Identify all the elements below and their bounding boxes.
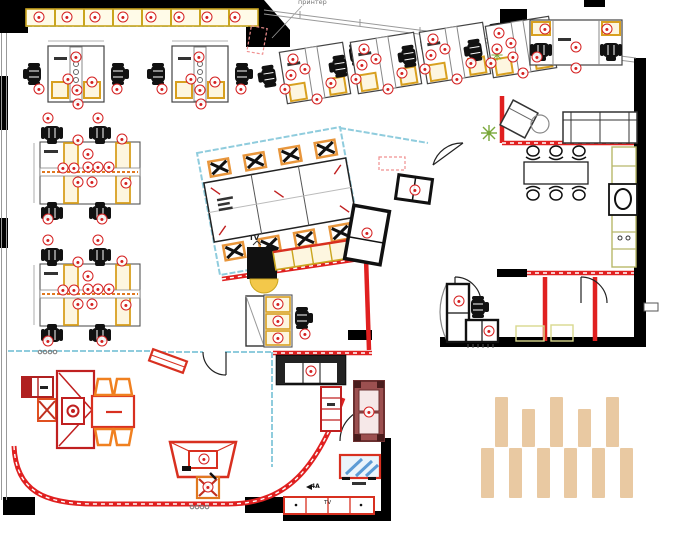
plan-drawing	[0, 0, 677, 535]
locker-row	[26, 9, 258, 26]
floor-plan: ●●●●●●●●●●●●●●●●●●●●●●●●●●●●●●●●●●●●●●●●…	[0, 0, 677, 535]
reception-chair	[197, 473, 219, 498]
single-desk-group	[246, 295, 313, 347]
kitchen-counter	[609, 147, 658, 311]
desk-pod-b	[147, 41, 253, 102]
workstation-cluster-1	[34, 126, 140, 220]
corridor-locker-small	[395, 175, 432, 203]
right-meeting-room	[524, 146, 588, 200]
top-right-desk-pod	[530, 20, 622, 65]
diagonal-desk-pods	[255, 16, 557, 107]
tv-label-center: TV	[249, 234, 259, 242]
printer-label: принтер	[298, 0, 327, 6]
reception-desk	[170, 442, 236, 477]
tv-unit	[247, 241, 278, 293]
tv-label-bottom: TV	[324, 500, 331, 506]
break-room	[22, 349, 187, 448]
desk-pod-a	[23, 41, 129, 102]
corridor-locker-tall	[345, 205, 390, 264]
workstation-cluster-2	[34, 248, 140, 342]
section-label: 4A	[311, 483, 320, 490]
lounge-room	[277, 356, 384, 514]
